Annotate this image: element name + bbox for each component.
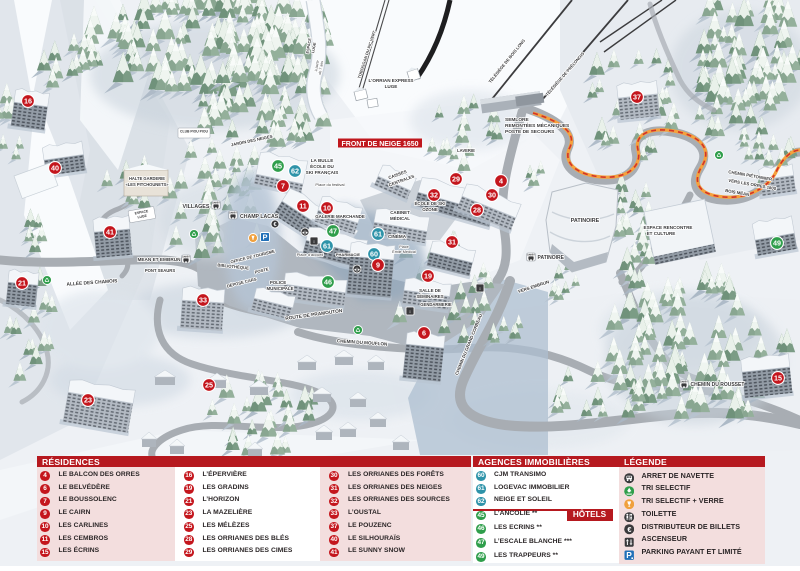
- svg-text:29: 29: [452, 175, 460, 184]
- svg-text:33: 33: [199, 296, 207, 305]
- svg-text:16: 16: [24, 97, 32, 106]
- svg-text:25: 25: [205, 381, 213, 390]
- svg-text:4: 4: [499, 177, 503, 186]
- svg-text:ARRÊT: ARRÊT: [182, 255, 190, 258]
- svg-text:11: 11: [299, 202, 307, 211]
- svg-text:L'ORRIAN EXPRESS: L'ORRIAN EXPRESS: [369, 78, 414, 83]
- svg-text:ET CULTURE: ET CULTURE: [647, 231, 676, 236]
- svg-text:ÉCOLE DE SKI: ÉCOLE DE SKI: [415, 201, 446, 206]
- svg-text:Émile Médical: Émile Médical: [392, 249, 416, 254]
- svg-text:SKI FRANÇAIS: SKI FRANÇAIS: [306, 170, 339, 175]
- svg-text:♦|♦: ♦|♦: [354, 267, 360, 272]
- svg-text:61: 61: [323, 242, 331, 251]
- svg-text:ARRÊT: ARRÊT: [229, 211, 237, 214]
- svg-text:LAVERIE: LAVERIE: [457, 148, 475, 153]
- svg-text:46: 46: [324, 278, 332, 287]
- svg-text:Place du festival: Place du festival: [315, 182, 344, 187]
- svg-text:60: 60: [370, 250, 378, 259]
- svg-text:LUGE: LUGE: [385, 84, 398, 89]
- svg-text:CLUB PIOU PIOU: CLUB PIOU PIOU: [180, 130, 208, 134]
- svg-text:POSTE DE SECOURS: POSTE DE SECOURS: [505, 129, 555, 135]
- svg-text:CINÉMA: CINÉMA: [388, 232, 407, 239]
- svg-text:32: 32: [430, 191, 438, 200]
- svg-text:PATINOIRE: PATINOIRE: [538, 255, 565, 261]
- svg-text:SALLE DE: SALLE DE: [419, 288, 441, 293]
- svg-text:€: €: [627, 525, 631, 534]
- svg-text:MEAN ET EMBRUN: MEAN ET EMBRUN: [138, 257, 182, 262]
- svg-text:P: P: [626, 550, 632, 560]
- svg-text:SÉMINAIRES: SÉMINAIRES: [416, 294, 443, 299]
- svg-text:GALERIE MARCHANDE: GALERIE MARCHANDE: [315, 214, 365, 219]
- svg-text:Place: Place: [399, 245, 409, 249]
- svg-text:POLICE: POLICE: [270, 280, 286, 285]
- svg-text:MUNICIPALE: MUNICIPALE: [267, 286, 294, 291]
- svg-text:28: 28: [473, 206, 481, 215]
- svg-text:↕: ↕: [313, 239, 315, 244]
- svg-text:31: 31: [448, 238, 456, 247]
- svg-text:Place d'accueil: Place d'accueil: [297, 252, 324, 257]
- svg-text:61: 61: [374, 230, 382, 239]
- svg-text:♦|♦: ♦|♦: [302, 230, 308, 235]
- svg-text:49: 49: [773, 239, 781, 248]
- svg-text:7: 7: [281, 182, 285, 191]
- svg-text:SEMLORE: SEMLORE: [505, 117, 530, 123]
- svg-text:6: 6: [422, 329, 426, 338]
- svg-text:ARRÊT: ARRÊT: [680, 380, 688, 383]
- svg-text:PATINOIRE: PATINOIRE: [571, 218, 600, 224]
- svg-text:PONT SEAURS: PONT SEAURS: [145, 268, 175, 273]
- svg-text:CHEMIN DU ROUSSET: CHEMIN DU ROUSSET: [691, 382, 745, 388]
- svg-text:MÉDICAL: MÉDICAL: [390, 216, 410, 221]
- svg-text:30: 30: [488, 191, 496, 200]
- svg-text:ÉCOLE DU: ÉCOLE DU: [310, 162, 334, 169]
- svg-text:19: 19: [424, 272, 432, 281]
- svg-text:↕: ↕: [409, 309, 411, 314]
- svg-text:62: 62: [291, 167, 299, 176]
- svg-text:ESPACE RENCONTRE: ESPACE RENCONTRE: [644, 225, 693, 230]
- svg-text:41: 41: [106, 228, 114, 237]
- svg-text:37: 37: [633, 93, 641, 102]
- svg-text:ARRÊT: ARRÊT: [527, 253, 535, 256]
- svg-text:LA BULLE: LA BULLE: [311, 158, 334, 163]
- svg-text:P: P: [262, 233, 267, 242]
- svg-text:15: 15: [774, 374, 782, 383]
- svg-text:CHAMP LACAS: CHAMP LACAS: [240, 214, 279, 220]
- svg-text:GENDARMERIE: GENDARMERIE: [420, 302, 452, 307]
- svg-text:21: 21: [18, 279, 26, 288]
- svg-text:40: 40: [51, 164, 59, 173]
- svg-text:CABINET: CABINET: [390, 210, 410, 215]
- svg-text:45: 45: [274, 162, 282, 171]
- svg-text:PHARMACIE: PHARMACIE: [336, 252, 361, 257]
- svg-text:FRONT DE NEIGE 1650: FRONT DE NEIGE 1650: [341, 141, 418, 148]
- svg-text:OZONE: OZONE: [422, 207, 438, 212]
- svg-text:HALTE GARDERIE: HALTE GARDERIE: [129, 176, 165, 181]
- svg-text:47: 47: [329, 227, 337, 236]
- svg-text:«LES PITCHOUNETS»: «LES PITCHOUNETS»: [126, 182, 170, 187]
- svg-text:10: 10: [323, 204, 331, 213]
- svg-text:9: 9: [376, 261, 380, 270]
- svg-text:↕: ↕: [479, 286, 481, 291]
- svg-text:ARRÊT: ARRÊT: [212, 201, 220, 204]
- svg-text:€: €: [273, 222, 276, 228]
- svg-text:VILLAGES: VILLAGES: [183, 204, 210, 210]
- svg-text:23: 23: [84, 396, 92, 405]
